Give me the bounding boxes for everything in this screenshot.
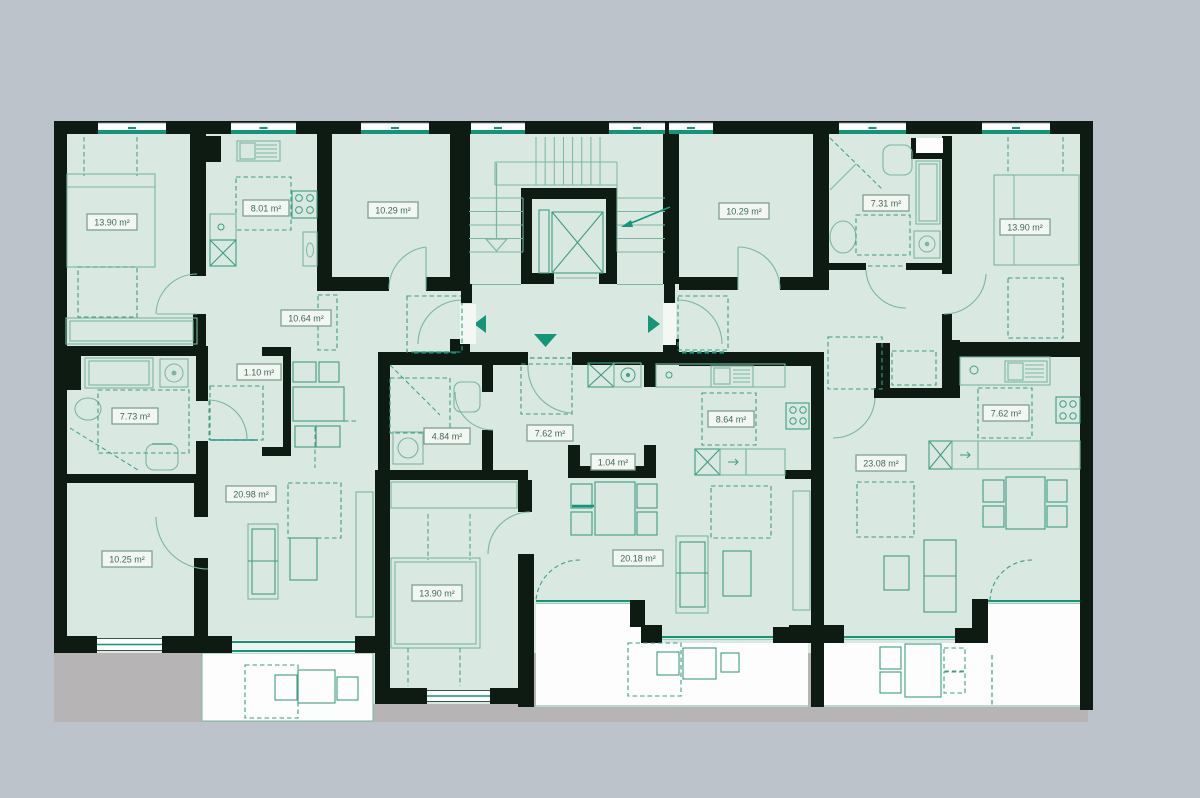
svg-text:13.90 m²: 13.90 m² [419,589,455,599]
svg-text:13.90 m²: 13.90 m² [1007,223,1043,233]
svg-text:13.90 m²: 13.90 m² [94,218,130,228]
svg-text:10.64 m²: 10.64 m² [288,314,324,324]
svg-text:23.08 m²: 23.08 m² [863,459,899,469]
svg-text:20.18 m²: 20.18 m² [620,554,656,564]
svg-text:1.04 m²: 1.04 m² [598,458,629,468]
svg-text:7.62 m²: 7.62 m² [535,429,566,439]
svg-text:8.64 m²: 8.64 m² [716,415,747,425]
svg-text:10.29 m²: 10.29 m² [375,206,411,216]
svg-text:10.29 m²: 10.29 m² [726,207,762,217]
svg-text:7.31 m²: 7.31 m² [871,199,902,209]
svg-text:8.01 m²: 8.01 m² [251,204,282,214]
svg-text:20.98 m²: 20.98 m² [233,490,269,500]
svg-text:7.62 m²: 7.62 m² [991,409,1022,419]
svg-text:4.84 m²: 4.84 m² [432,432,463,442]
svg-text:7.73 m²: 7.73 m² [120,412,151,422]
svg-text:10.25 m²: 10.25 m² [109,555,145,565]
svg-text:1.10 m²: 1.10 m² [244,368,275,378]
